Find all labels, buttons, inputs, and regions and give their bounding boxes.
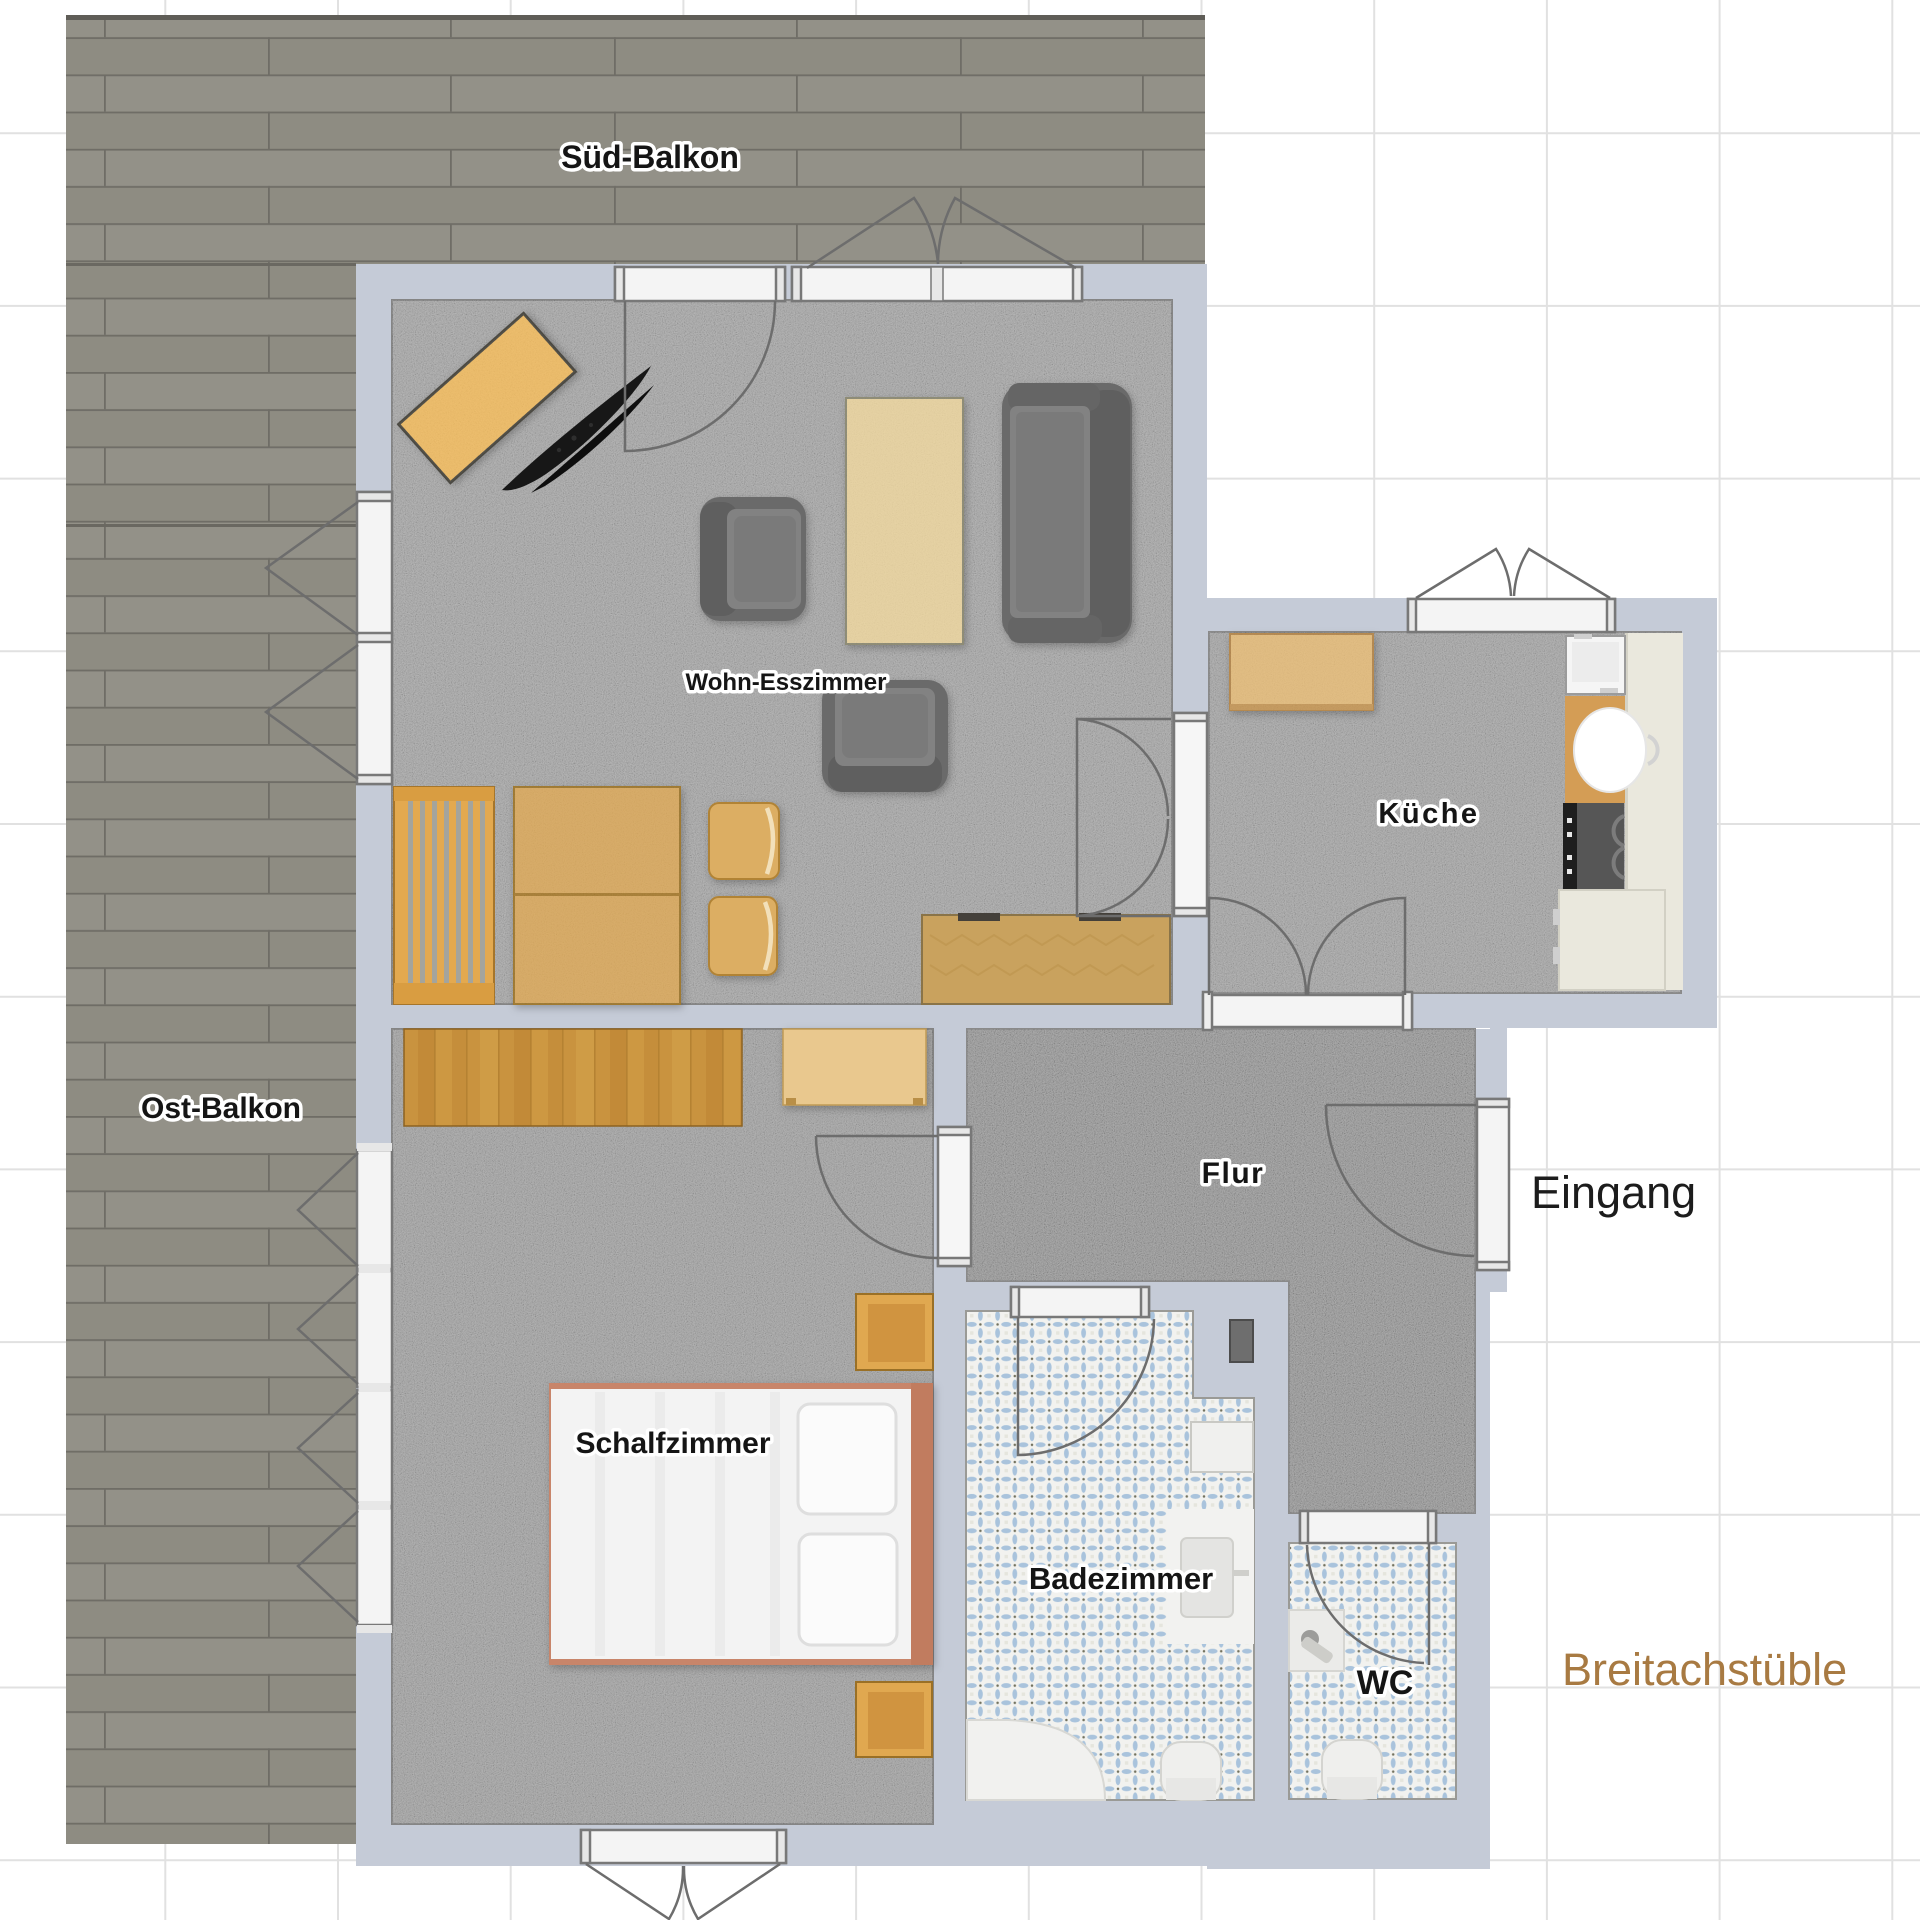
svg-text:Süd-Balkon: Süd-Balkon [561,139,739,175]
svg-text:Wohn-Esszimmer: Wohn-Esszimmer [686,669,887,696]
svg-text:Flur: Flur [1202,1157,1265,1190]
svg-text:Eingang: Eingang [1531,1167,1696,1218]
svg-text:Breitachstüble: Breitachstüble [1562,1644,1847,1695]
svg-text:Schalfzimmer: Schalfzimmer [575,1427,770,1460]
svg-text:Küche: Küche [1378,798,1479,830]
svg-text:WC: WC [1357,1664,1414,1702]
svg-text:Ost-Balkon: Ost-Balkon [141,1092,301,1125]
svg-text:Badezimmer: Badezimmer [1029,1561,1213,1596]
